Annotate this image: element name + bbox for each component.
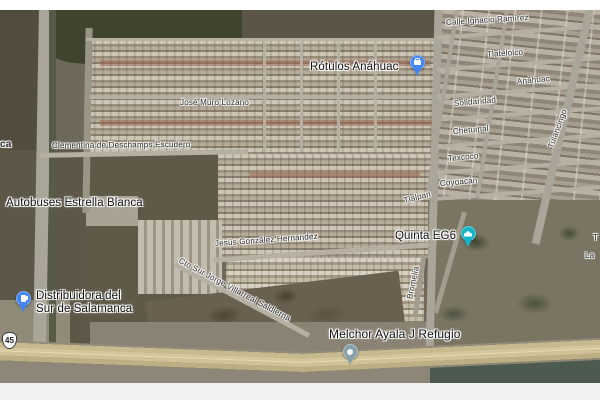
poi-label-quinta-eg6[interactable]: Quinta EG6 — [395, 230, 456, 243]
estate-top-road — [86, 38, 454, 41]
marker-rotulos-anahuac[interactable] — [409, 55, 425, 76]
red-roof-row — [250, 172, 420, 177]
poi-label-rotulos-anahuac[interactable]: Rótulos Anáhuac — [310, 61, 398, 74]
estate-street — [90, 95, 450, 99]
street-label-jose-muro-lozano: José Muro Lozano — [180, 99, 249, 107]
estate-street-v — [374, 42, 377, 152]
estate-street-v — [300, 42, 303, 152]
pin-tail — [346, 357, 354, 365]
marker-distribuidora[interactable] — [15, 291, 31, 312]
pin-tail — [413, 68, 421, 76]
marker-quinta-eg6[interactable] — [460, 226, 476, 247]
maps-satellite-screenshot: Calle Ignacio Ramírez Tlatelolco Anáhuac… — [0, 0, 600, 400]
gas-pump-icon — [21, 295, 26, 302]
street-label-clementina-de-deschamps-escudero: Clementina de Deschamps Escudero — [52, 141, 191, 150]
letterbox-bottom — [0, 383, 600, 400]
highway-number: 45 — [5, 337, 14, 345]
partial-street-label: La — [585, 252, 594, 260]
partial-street-label: T — [593, 234, 598, 242]
poi-label-line2: Sur de Salamanca — [36, 303, 132, 316]
briefcase-icon — [414, 60, 421, 65]
marker-melchor-ayala[interactable] — [342, 344, 358, 365]
dot-icon — [347, 349, 353, 355]
poi-label-autobuses-estrella-blanca[interactable]: Autobuses Estrella Blanca — [6, 197, 143, 210]
pin-tail — [19, 304, 27, 312]
estate-street-v — [337, 42, 340, 152]
letterbox-top — [0, 0, 600, 10]
venue-icon — [464, 231, 472, 237]
estate-street-v — [263, 42, 266, 152]
poi-label-line1: Distribuidora del — [36, 290, 132, 303]
poi-label-distribuidora[interactable]: Distribuidora del Sur de Salamanca — [36, 290, 132, 316]
red-roof-row — [100, 120, 440, 126]
pin-tail — [464, 239, 472, 247]
partial-locality-label: ca — [0, 140, 12, 150]
poi-label-melchor-ayala-j-refugio[interactable]: Melchor Ayala J Refugio — [329, 328, 460, 342]
